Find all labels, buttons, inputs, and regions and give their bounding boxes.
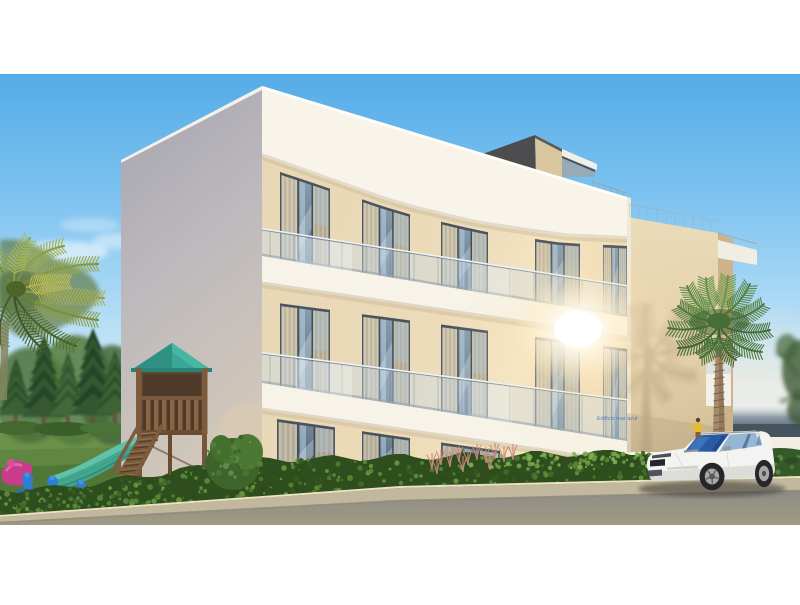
svg-text:Edificio mar azul: Edificio mar azul	[597, 416, 637, 422]
